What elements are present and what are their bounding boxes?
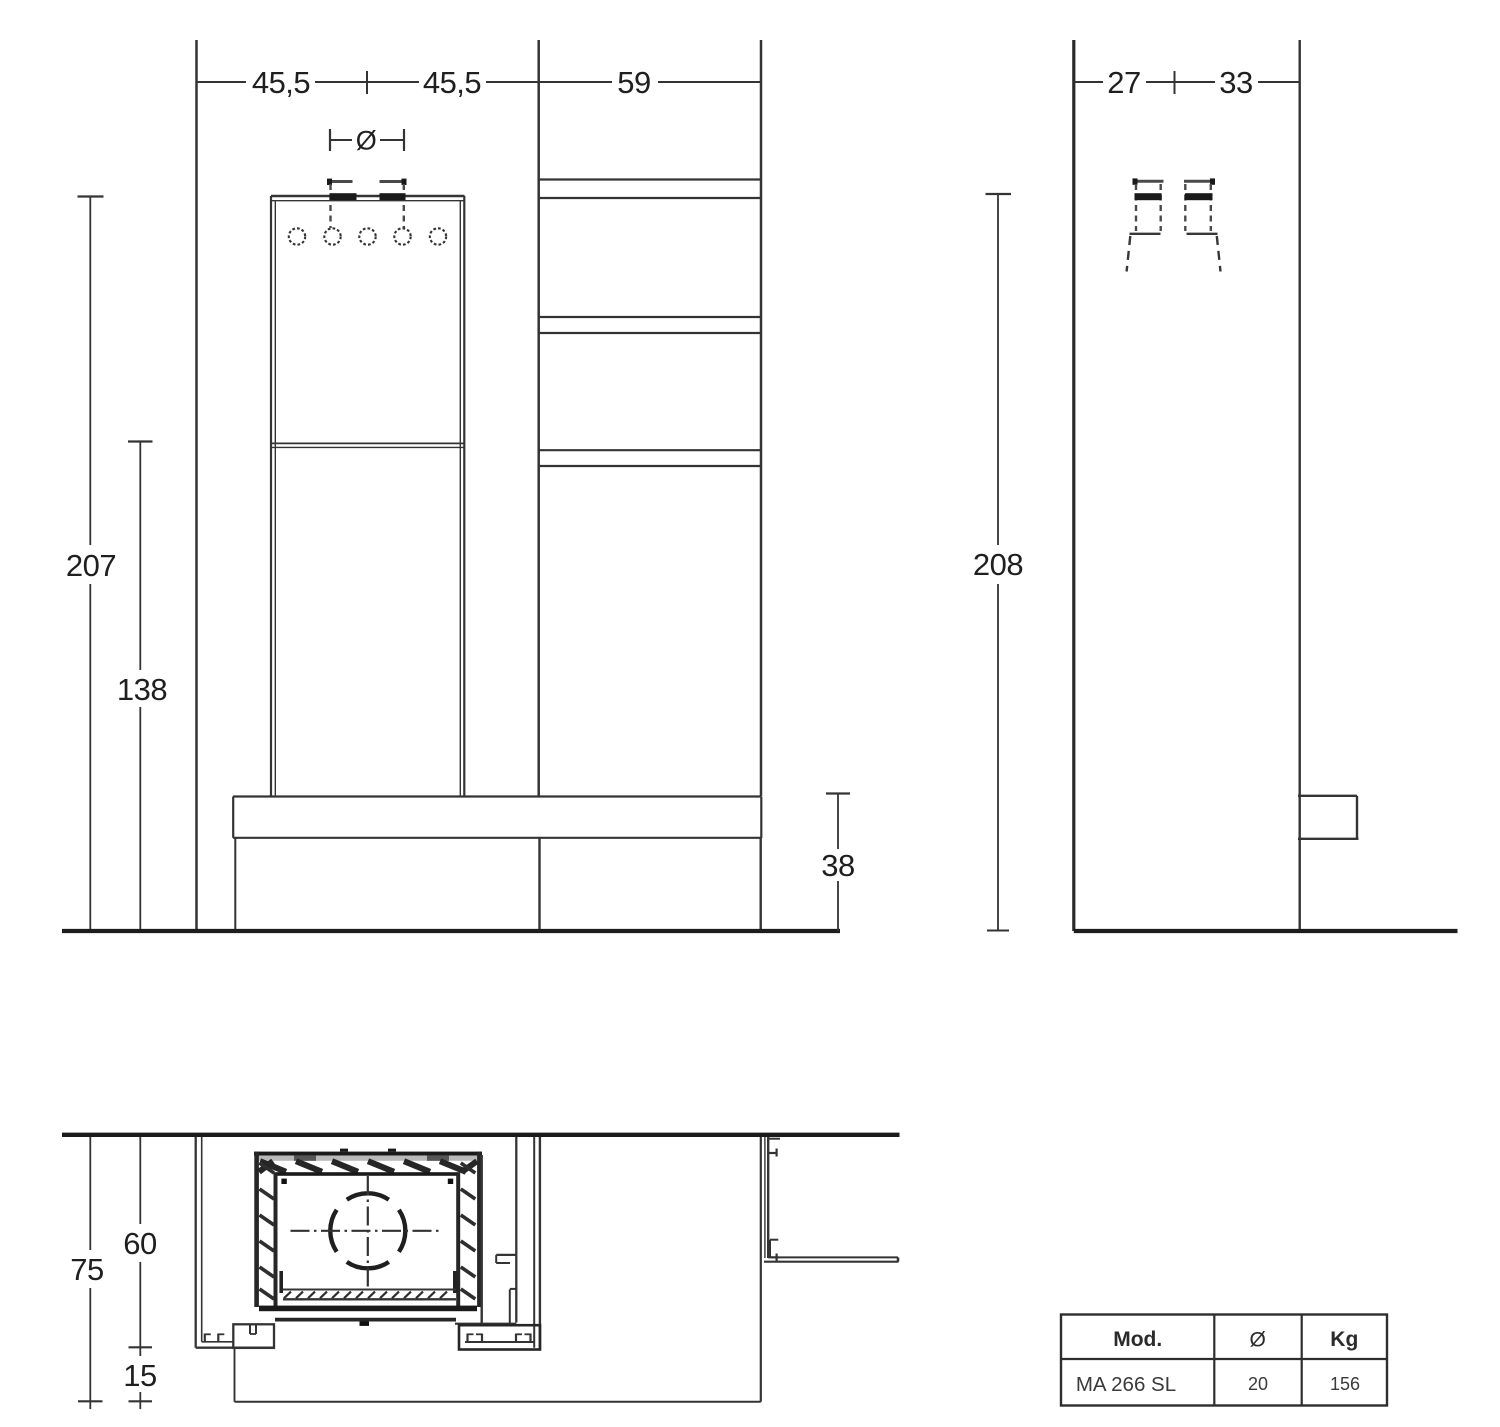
svg-text:15: 15 [123,1358,156,1393]
svg-text:Ø: Ø [356,126,377,156]
svg-text:59: 59 [617,65,650,100]
svg-text:156: 156 [1330,1374,1360,1394]
svg-text:Ø: Ø [1250,1329,1266,1352]
svg-text:207: 207 [66,548,116,583]
svg-text:75: 75 [70,1252,103,1287]
svg-text:Mod.: Mod. [1113,1328,1162,1351]
svg-text:138: 138 [117,672,167,707]
svg-text:20: 20 [1248,1374,1268,1394]
svg-text:45,5: 45,5 [423,65,481,100]
svg-text:208: 208 [973,547,1023,582]
svg-text:Kg: Kg [1330,1328,1358,1351]
svg-text:60: 60 [123,1226,157,1261]
svg-text:27: 27 [1107,65,1140,100]
svg-text:MA 266 SL: MA 266 SL [1076,1373,1176,1396]
svg-text:45,5: 45,5 [252,65,310,100]
svg-text:33: 33 [1219,65,1252,100]
svg-text:38: 38 [821,848,854,883]
